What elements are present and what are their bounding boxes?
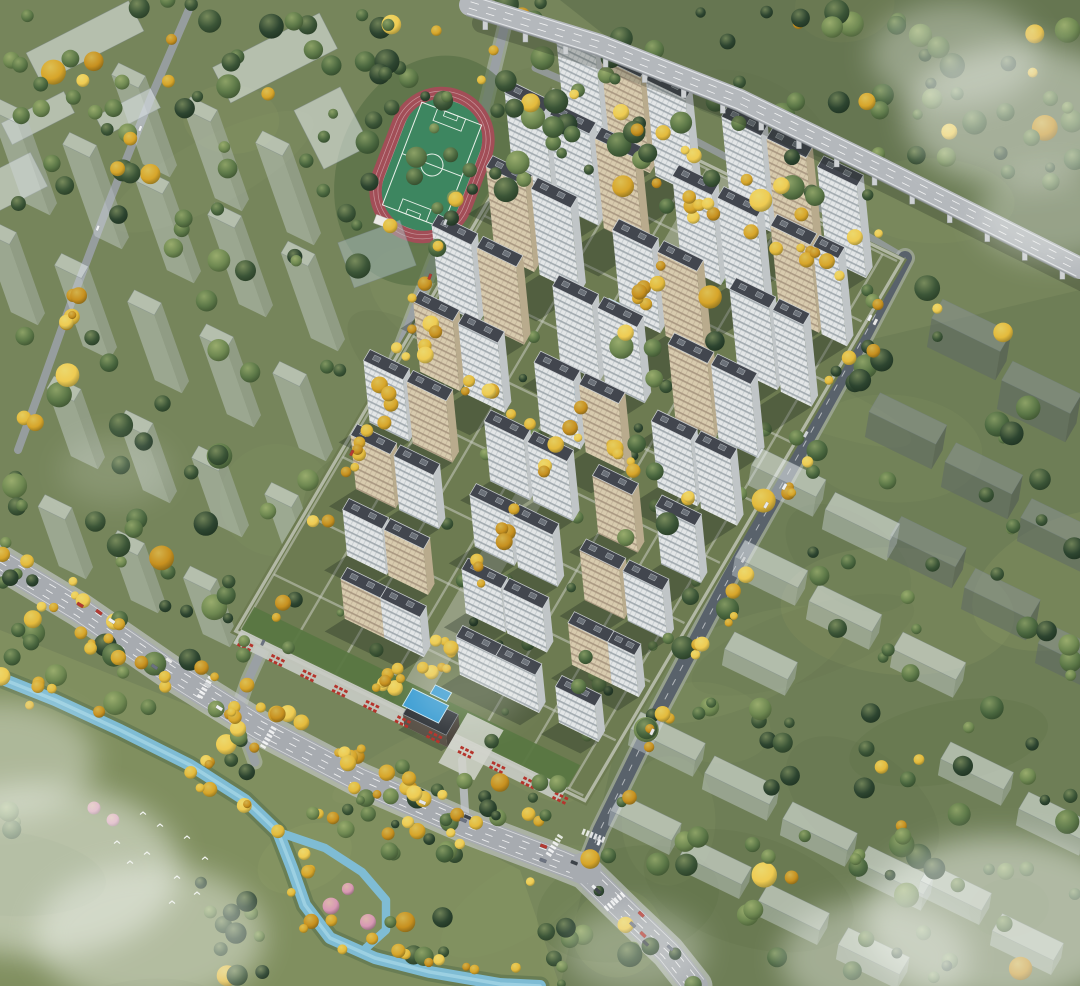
masterplan-scene: [0, 0, 1080, 986]
aerial-rendering: [0, 0, 1080, 986]
